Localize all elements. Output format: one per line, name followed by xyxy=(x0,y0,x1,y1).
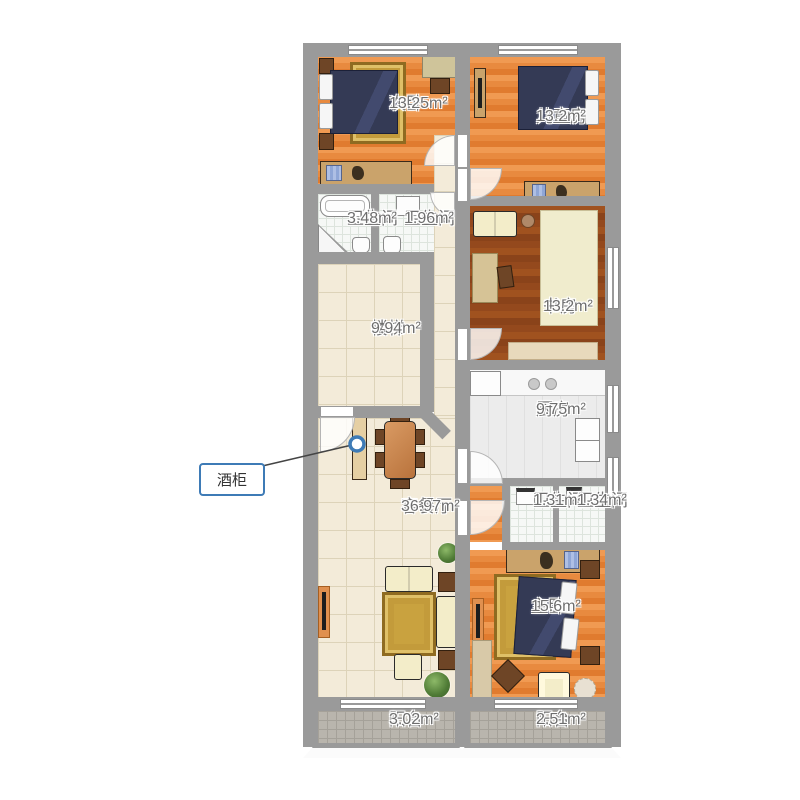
dining-chair[interactable] xyxy=(415,429,425,445)
dining-chair[interactable] xyxy=(375,452,385,468)
wardrobe-item[interactable] xyxy=(540,552,553,569)
dining-chair[interactable] xyxy=(375,429,385,445)
corridor-floor[interactable] xyxy=(434,135,455,418)
kitchen-sink[interactable] xyxy=(470,371,501,396)
wardrobe-item[interactable] xyxy=(564,551,579,569)
room-area: 1.34m² xyxy=(577,489,627,512)
room-area: 9.75m² xyxy=(536,398,586,421)
room-area: 2.51m² xyxy=(536,708,586,731)
fridge[interactable] xyxy=(575,418,600,462)
room-area: 1.96m² xyxy=(404,207,454,230)
dining-chair[interactable] xyxy=(415,452,425,468)
window[interactable] xyxy=(607,247,619,309)
tv[interactable] xyxy=(478,78,482,108)
room-area: 13.2m² xyxy=(543,295,593,318)
room-area: 13.2m² xyxy=(536,105,586,128)
door-leaf[interactable] xyxy=(457,328,468,361)
stove-burner[interactable] xyxy=(528,378,540,390)
wall xyxy=(455,711,470,747)
room-area: 15.6m² xyxy=(531,595,581,618)
wall xyxy=(303,711,318,747)
rug[interactable] xyxy=(382,592,436,656)
room-area: 13.25m² xyxy=(389,92,448,115)
balcony-rail xyxy=(455,743,621,758)
desk[interactable] xyxy=(422,56,458,78)
window[interactable] xyxy=(607,385,619,433)
nightstand[interactable] xyxy=(580,646,600,665)
pillow[interactable] xyxy=(319,74,333,100)
floor-plan-canvas: 次卧 13.25m² 儿童房 13.2m² 卫生间 3.48m² 卫生间 1.9… xyxy=(0,0,800,800)
wall xyxy=(470,360,605,370)
wall xyxy=(420,252,434,412)
callout-label[interactable]: 酒柜 xyxy=(199,463,265,496)
dresser-item[interactable] xyxy=(352,166,364,180)
floor-mat[interactable] xyxy=(508,342,598,360)
pillow[interactable] xyxy=(585,70,599,96)
wall xyxy=(470,196,605,206)
dresser-item[interactable] xyxy=(326,165,342,181)
tv[interactable] xyxy=(476,604,480,638)
pillow[interactable] xyxy=(560,617,579,650)
desk[interactable] xyxy=(472,640,492,702)
dining-table[interactable] xyxy=(384,421,416,479)
sofa[interactable] xyxy=(385,566,433,592)
door-leaf[interactable] xyxy=(320,406,354,417)
bed[interactable] xyxy=(330,70,398,134)
chair[interactable] xyxy=(497,265,515,289)
wall xyxy=(318,184,434,194)
room-area: 36.97m² xyxy=(401,495,460,518)
desk[interactable] xyxy=(472,253,498,303)
wall xyxy=(605,711,621,747)
callout-text: 酒柜 xyxy=(217,469,247,490)
door-leaf[interactable] xyxy=(457,448,468,484)
room-area: 3.48m² xyxy=(347,207,397,230)
room-area: 3.02m² xyxy=(389,708,439,731)
nightstand[interactable] xyxy=(580,560,600,579)
tv[interactable] xyxy=(322,592,326,630)
side-table[interactable] xyxy=(521,214,535,228)
plant[interactable] xyxy=(424,672,450,698)
wall xyxy=(605,43,621,717)
wine-cabinet[interactable] xyxy=(352,416,367,480)
wall xyxy=(502,542,605,550)
dining-chair[interactable] xyxy=(390,479,410,489)
window[interactable] xyxy=(348,45,428,55)
wall xyxy=(303,43,318,717)
door-leaf[interactable] xyxy=(457,168,468,202)
room-area: 1.31m² xyxy=(533,489,583,512)
balcony-rail xyxy=(303,743,469,758)
sofa[interactable] xyxy=(473,211,517,237)
door-leaf[interactable] xyxy=(457,134,468,168)
stove-burner[interactable] xyxy=(545,378,557,390)
pillow[interactable] xyxy=(319,103,333,129)
wall xyxy=(318,252,434,264)
pillow[interactable] xyxy=(585,99,599,125)
wall xyxy=(502,486,510,542)
armchair[interactable] xyxy=(394,654,422,680)
window[interactable] xyxy=(498,45,578,55)
nightstand[interactable] xyxy=(319,133,334,150)
room-area: 9.94m² xyxy=(371,317,421,340)
